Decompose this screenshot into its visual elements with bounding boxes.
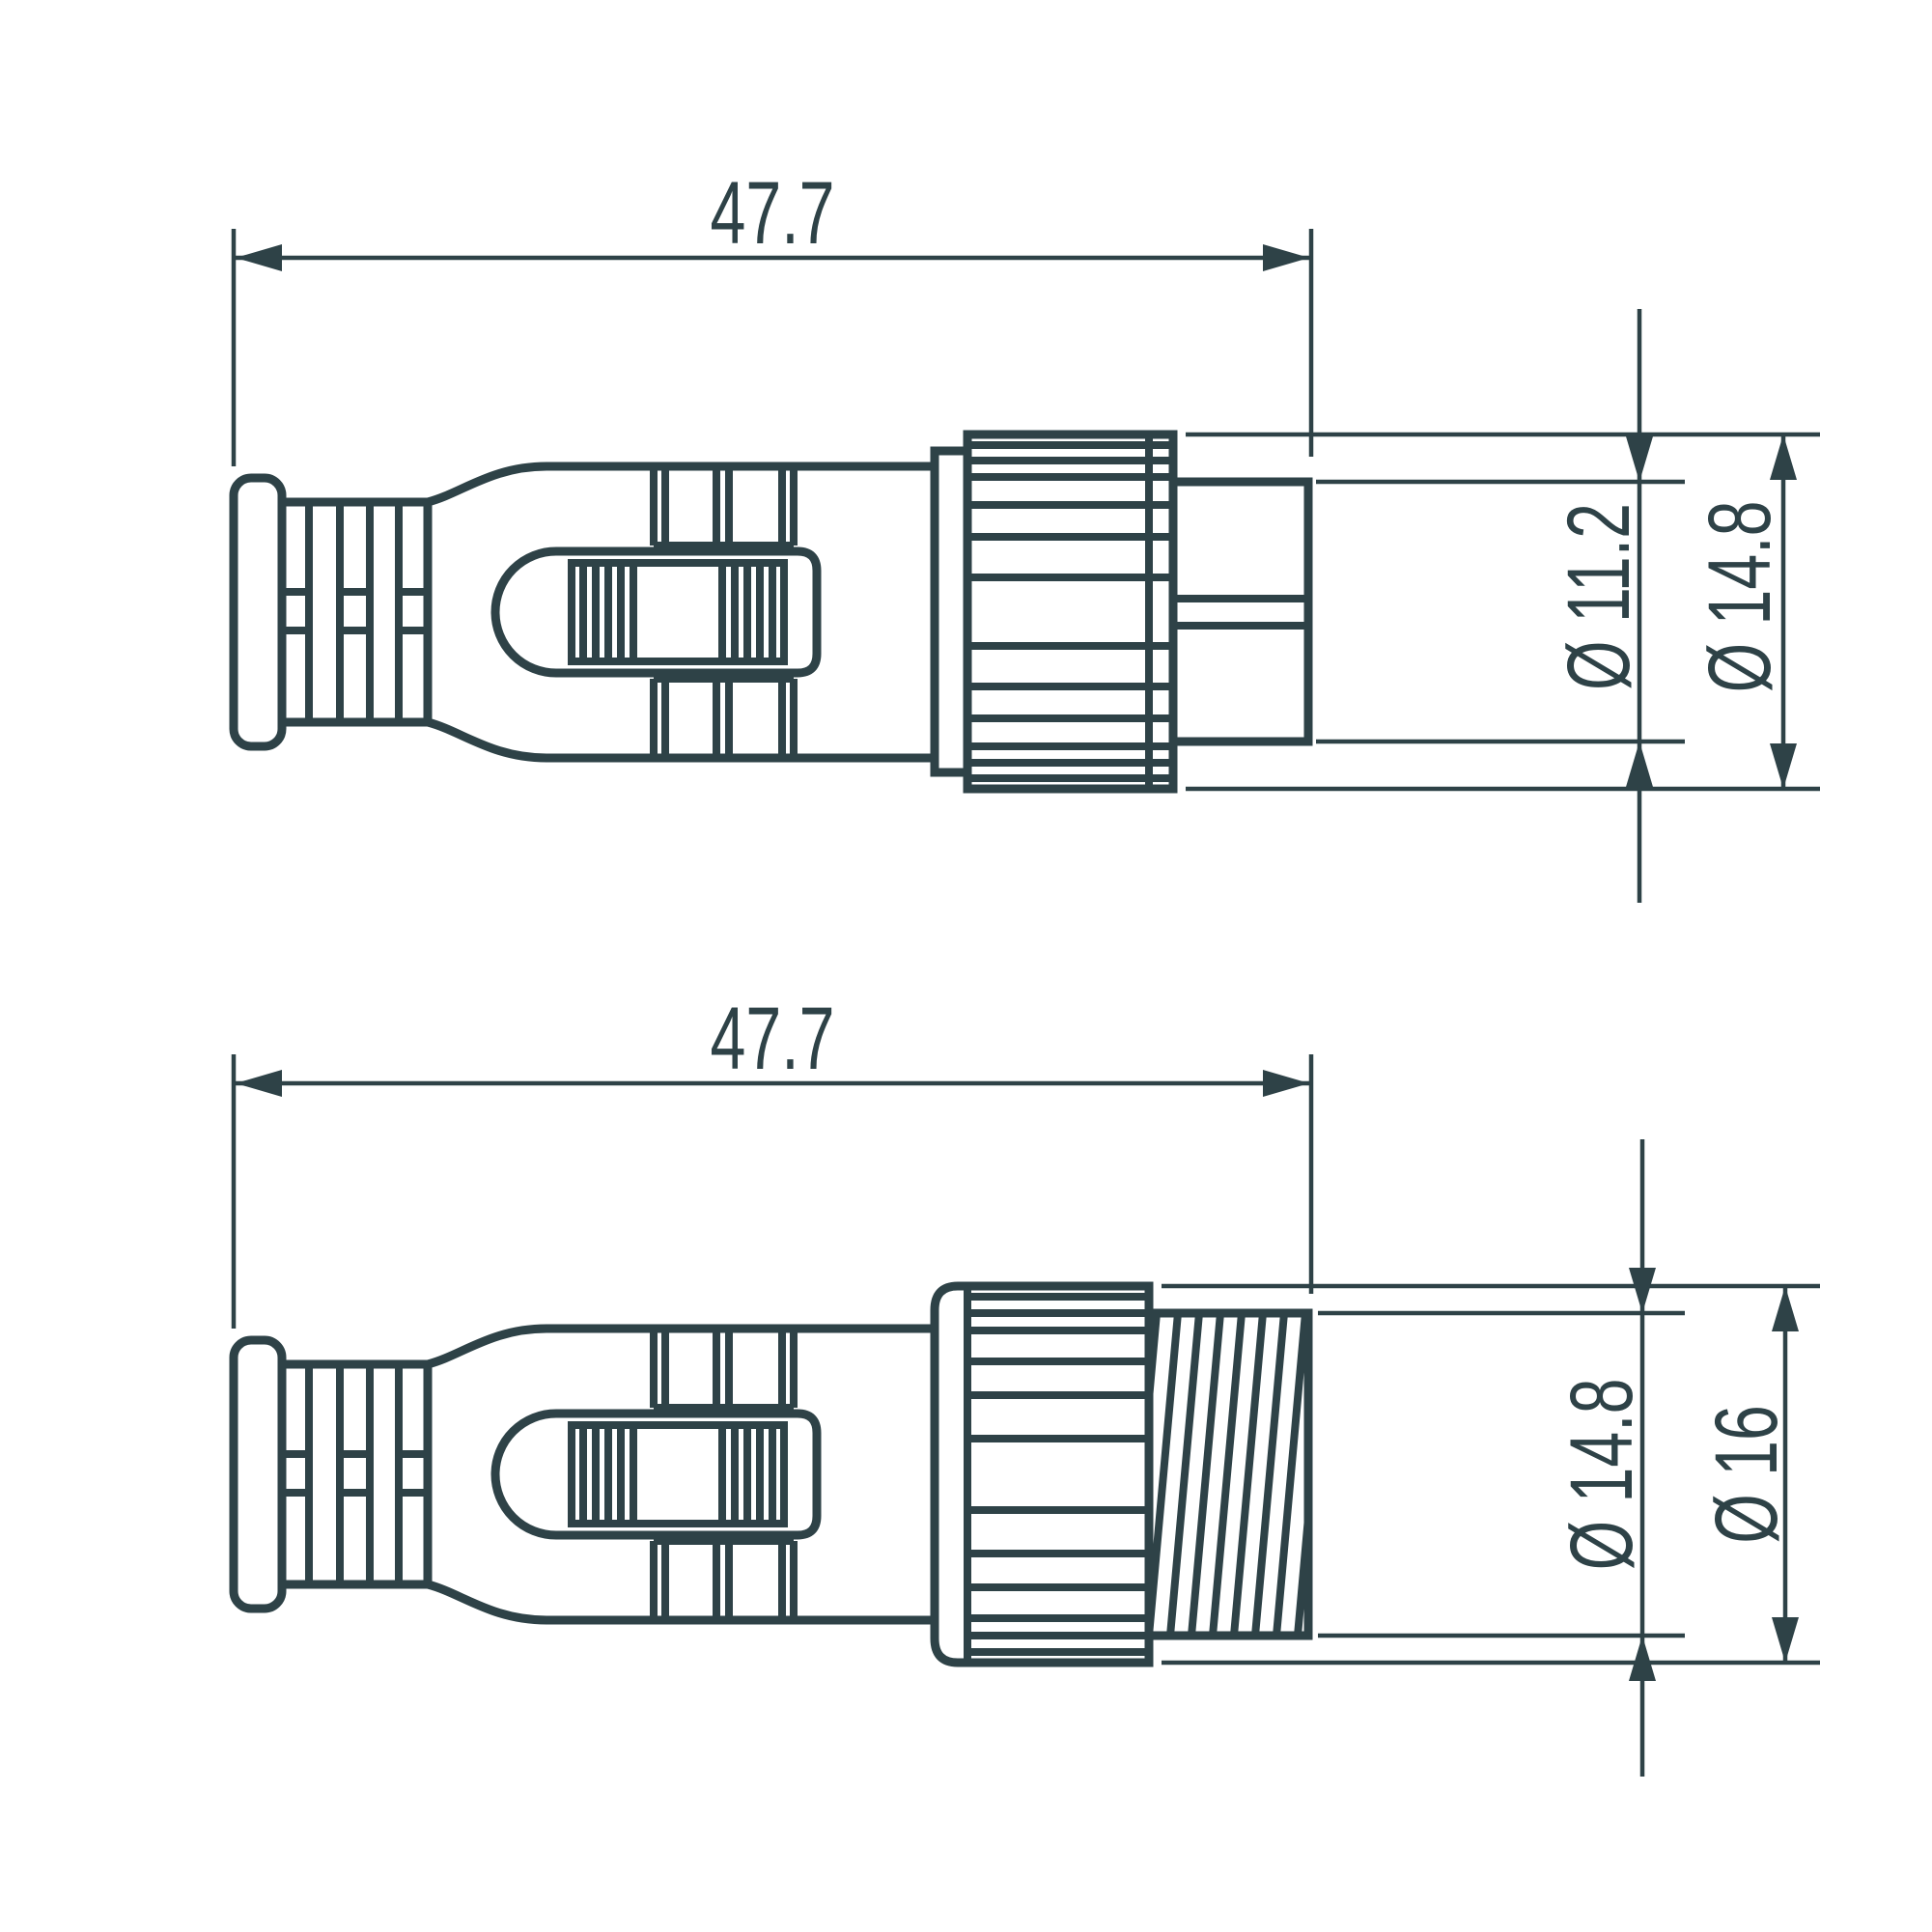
female-length-label: 47.7 [711, 988, 835, 1087]
female-connector-view: 47.7 Ø 14.8 Ø 16 [234, 988, 1820, 1777]
male-contact-pin [1173, 482, 1308, 742]
female-nut-diameter-label: Ø 16 [1695, 1405, 1795, 1544]
male-connector-view: 47.7 Ø 11.2 Ø 14.8 [234, 162, 1820, 903]
pin-groove [1173, 599, 1308, 626]
female-diameter-dimensions: Ø 14.8 Ø 16 [1162, 1139, 1820, 1777]
male-coupling-nut [935, 434, 1173, 789]
female-thread-diameter-label: Ø 14.8 [1551, 1379, 1650, 1571]
nut-flange [935, 451, 967, 772]
female-coupling-nut [935, 1286, 1149, 1663]
pin-body [1173, 482, 1308, 742]
male-pin-diameter-label: Ø 11.2 [1548, 503, 1647, 690]
male-nut-diameter-label: Ø 14.8 [1689, 501, 1788, 693]
female-length-dimension: 47.7 [234, 988, 1311, 1329]
technical-drawing-canvas: 47.7 Ø 11.2 Ø 14.8 47.7 [0, 0, 1932, 1932]
female-left-assembly [234, 1329, 935, 1620]
nut-knurl-ribs [967, 1286, 1149, 1663]
male-length-label: 47.7 [711, 162, 835, 262]
nut-knurl-ribs [967, 434, 1173, 789]
nut-knurl-body [967, 434, 1173, 789]
male-left-assembly [234, 466, 935, 758]
male-diameter-dimensions: Ø 11.2 Ø 14.8 [1186, 309, 1820, 903]
female-thread [1128, 1313, 1327, 1636]
thread-helix-lines [1128, 1313, 1327, 1636]
male-length-dimension: 47.7 [234, 162, 1311, 466]
